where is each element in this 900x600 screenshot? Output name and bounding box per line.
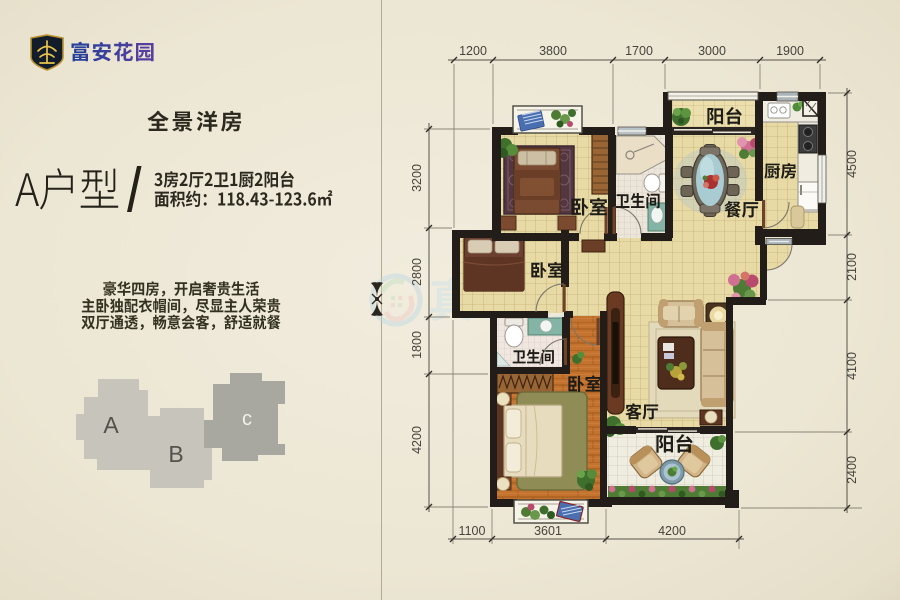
svg-text:4500: 4500: [845, 150, 859, 178]
svg-text:1800: 1800: [410, 331, 424, 359]
svg-text:1700: 1700: [625, 44, 653, 58]
svg-text:3601: 3601: [534, 524, 562, 538]
svg-text:3800: 3800: [539, 44, 567, 58]
svg-text:2800: 2800: [410, 258, 424, 286]
svg-text:2100: 2100: [845, 253, 859, 281]
svg-text:A: A: [103, 412, 119, 438]
svg-text:1100: 1100: [459, 524, 486, 538]
svg-text:4200: 4200: [410, 426, 424, 454]
svg-text:1200: 1200: [459, 44, 487, 58]
svg-text:4200: 4200: [658, 524, 686, 538]
svg-text:1900: 1900: [776, 44, 804, 58]
svg-text:2400: 2400: [845, 456, 859, 484]
svg-text:c: c: [242, 408, 252, 430]
svg-text:4100: 4100: [845, 352, 859, 380]
svg-text:3000: 3000: [698, 44, 726, 58]
svg-text:B: B: [168, 441, 183, 467]
svg-text:3200: 3200: [410, 164, 424, 192]
